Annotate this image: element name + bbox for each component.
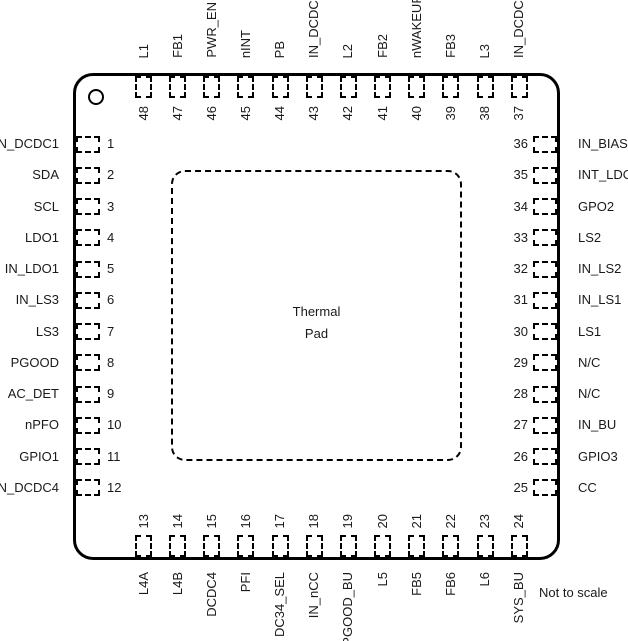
pin-label-10: nPFO <box>25 416 59 434</box>
pin-label-40: nWAKEUP <box>409 0 425 58</box>
pin-number-41: 41 <box>375 106 391 120</box>
thermal-pad-label-line2: Pad <box>305 326 328 341</box>
pin-label-13: L4A <box>136 572 152 595</box>
pin-label-12: IN_DCDC4 <box>0 479 59 497</box>
pin-number-15: 15 <box>204 514 220 528</box>
pin-pad-18 <box>306 535 323 557</box>
pin-label-19: PGOOD_BU <box>340 572 356 641</box>
pin-number-9: 9 <box>107 385 114 403</box>
pin-number-10: 10 <box>107 416 121 434</box>
pin-number-14: 14 <box>170 514 186 528</box>
pin-label-5: IN_LDO1 <box>5 260 59 278</box>
pin-number-1: 1 <box>107 135 114 153</box>
pin-label-30: LS1 <box>578 323 601 341</box>
pin-pad-17 <box>272 535 289 557</box>
pin-pad-42 <box>340 76 357 98</box>
pin-number-42: 42 <box>340 106 356 120</box>
thermal-pad: Thermal Pad <box>171 170 462 461</box>
pin-pad-34 <box>533 198 557 215</box>
pin-number-8: 8 <box>107 354 114 372</box>
pin-label-2: SDA <box>32 166 59 184</box>
pin-pad-39 <box>442 76 459 98</box>
thermal-pad-label: Thermal Pad <box>293 304 341 341</box>
pin-number-17: 17 <box>272 514 288 528</box>
pin-number-37: 37 <box>511 106 527 120</box>
pin-number-24: 24 <box>511 514 527 528</box>
pin-number-48: 48 <box>136 106 152 120</box>
pin-pad-14 <box>169 535 186 557</box>
pin-number-43: 43 <box>306 106 322 120</box>
pin-label-22: FB6 <box>443 572 459 596</box>
pin-number-38: 38 <box>477 106 493 120</box>
pin-number-47: 47 <box>170 106 186 120</box>
pin-pad-43 <box>306 76 323 98</box>
pin-pad-29 <box>533 354 557 371</box>
pin-number-22: 22 <box>443 514 459 528</box>
pin-label-8: PGOOD <box>11 354 59 372</box>
pin-label-14: L4B <box>170 572 186 595</box>
pin-label-31: IN_LS1 <box>578 291 621 309</box>
pin-number-29: 29 <box>514 354 528 372</box>
pin-number-33: 33 <box>514 229 528 247</box>
pin-pad-3 <box>76 198 100 215</box>
pin-label-38: L3 <box>477 44 493 58</box>
pin-pad-6 <box>76 292 100 309</box>
pin-label-11: GPIO1 <box>19 448 59 466</box>
pin-number-3: 3 <box>107 198 114 216</box>
pin-number-21: 21 <box>409 514 425 528</box>
pin-label-45: nINT <box>238 30 254 58</box>
pin-pad-16 <box>237 535 254 557</box>
pin-label-33: LS2 <box>578 229 601 247</box>
pin-number-18: 18 <box>306 514 322 528</box>
pin-pad-15 <box>203 535 220 557</box>
pin-label-44: PB <box>272 41 288 58</box>
pin-pad-31 <box>533 292 557 309</box>
pin-number-34: 34 <box>514 198 528 216</box>
pin-number-4: 4 <box>107 229 114 247</box>
pin-number-13: 13 <box>136 514 152 528</box>
pin-label-21: FB5 <box>409 572 425 596</box>
pin-label-3: SCL <box>34 198 59 216</box>
pin-label-34: GPO2 <box>578 198 614 216</box>
pin1-indicator-icon <box>88 89 104 105</box>
pin-label-37: IN_DCDC3 <box>511 0 527 58</box>
pin-number-30: 30 <box>514 323 528 341</box>
pin-pad-20 <box>374 535 391 557</box>
pin-number-6: 6 <box>107 291 114 309</box>
pin-label-7: LS3 <box>36 323 59 341</box>
pin-label-29: N/C <box>578 354 600 372</box>
pin-label-39: FB3 <box>443 34 459 58</box>
pin-pad-28 <box>533 386 557 403</box>
pin-label-48: L1 <box>136 44 152 58</box>
pin-label-41: FB2 <box>375 34 391 58</box>
pin-label-46: PWR_EN <box>204 2 220 58</box>
pin-pad-24 <box>511 535 528 557</box>
pin-pad-45 <box>237 76 254 98</box>
pin-number-40: 40 <box>409 106 425 120</box>
pin-pad-41 <box>374 76 391 98</box>
pin-label-6: IN_LS3 <box>16 291 59 309</box>
pin-pad-9 <box>76 386 100 403</box>
pin-number-27: 27 <box>514 416 528 434</box>
pin-pad-47 <box>169 76 186 98</box>
pin-number-45: 45 <box>238 106 254 120</box>
pin-number-16: 16 <box>238 514 254 528</box>
pin-number-7: 7 <box>107 323 114 341</box>
pin-label-9: AC_DET <box>8 385 59 403</box>
pin-pad-35 <box>533 167 557 184</box>
pin-pad-48 <box>135 76 152 98</box>
pin-number-23: 23 <box>477 514 493 528</box>
pin-label-24: SYS_BU <box>511 572 527 623</box>
thermal-pad-label-line1: Thermal <box>293 304 341 319</box>
pin-number-2: 2 <box>107 166 114 184</box>
pin-label-32: IN_LS2 <box>578 260 621 278</box>
pin-pad-26 <box>533 448 557 465</box>
pin-label-15: DCDC4 <box>204 572 220 617</box>
pin-pad-13 <box>135 535 152 557</box>
pin-pad-23 <box>477 535 494 557</box>
pin-pad-21 <box>408 535 425 557</box>
pin-label-18: IN_nCC <box>306 572 322 618</box>
pin-pad-22 <box>442 535 459 557</box>
pin-pad-38 <box>477 76 494 98</box>
pin-pad-4 <box>76 229 100 246</box>
pin-number-11: 11 <box>107 448 121 466</box>
pin-label-20: L5 <box>375 572 391 586</box>
pin-pad-32 <box>533 261 557 278</box>
pin-pad-30 <box>533 323 557 340</box>
pin-pad-44 <box>272 76 289 98</box>
pin-label-28: N/C <box>578 385 600 403</box>
pin-number-44: 44 <box>272 106 288 120</box>
pin-pad-11 <box>76 448 100 465</box>
pin-number-35: 35 <box>514 166 528 184</box>
pin-pad-19 <box>340 535 357 557</box>
pin-label-42: L2 <box>340 44 356 58</box>
pin-label-25: CC <box>578 479 597 497</box>
pin-pad-46 <box>203 76 220 98</box>
pin-label-35: INT_LDO <box>578 166 628 184</box>
pin-pad-8 <box>76 354 100 371</box>
pin-number-12: 12 <box>107 479 121 497</box>
pin-number-20: 20 <box>375 514 391 528</box>
pin-number-5: 5 <box>107 260 114 278</box>
pin-pad-25 <box>533 479 557 496</box>
pin-pad-37 <box>511 76 528 98</box>
pin-number-26: 26 <box>514 448 528 466</box>
pin-pad-1 <box>76 136 100 153</box>
pinout-diagram: Thermal Pad 1IN_DCDC12SDA3SCL4LDO15IN_LD… <box>0 0 628 641</box>
pin-number-28: 28 <box>514 385 528 403</box>
pin-label-4: LDO1 <box>25 229 59 247</box>
pin-number-25: 25 <box>514 479 528 497</box>
pin-number-19: 19 <box>340 514 356 528</box>
pin-pad-27 <box>533 417 557 434</box>
pin-label-1: IN_DCDC1 <box>0 135 59 153</box>
pin-number-39: 39 <box>443 106 459 120</box>
pin-label-23: L6 <box>477 572 493 586</box>
pin-label-26: GPIO3 <box>578 448 618 466</box>
pin-pad-10 <box>76 417 100 434</box>
pin-pad-12 <box>76 479 100 496</box>
pin-label-27: IN_BU <box>578 416 616 434</box>
pin-number-31: 31 <box>514 291 528 309</box>
pin-label-47: FB1 <box>170 34 186 58</box>
pin-number-32: 32 <box>514 260 528 278</box>
pin-number-46: 46 <box>204 106 220 120</box>
pin-pad-2 <box>76 167 100 184</box>
pin-pad-40 <box>408 76 425 98</box>
pin-number-36: 36 <box>514 135 528 153</box>
pin-label-36: IN_BIAS <box>578 135 628 153</box>
pin-label-17: DC34_SEL <box>272 572 288 637</box>
pin-label-43: IN_DCDC2 <box>306 0 322 58</box>
scale-note: Not to scale <box>539 585 608 600</box>
pin-pad-36 <box>533 136 557 153</box>
pin-label-16: PFI <box>238 572 254 592</box>
pin-pad-33 <box>533 229 557 246</box>
pin-pad-5 <box>76 261 100 278</box>
pin-pad-7 <box>76 323 100 340</box>
